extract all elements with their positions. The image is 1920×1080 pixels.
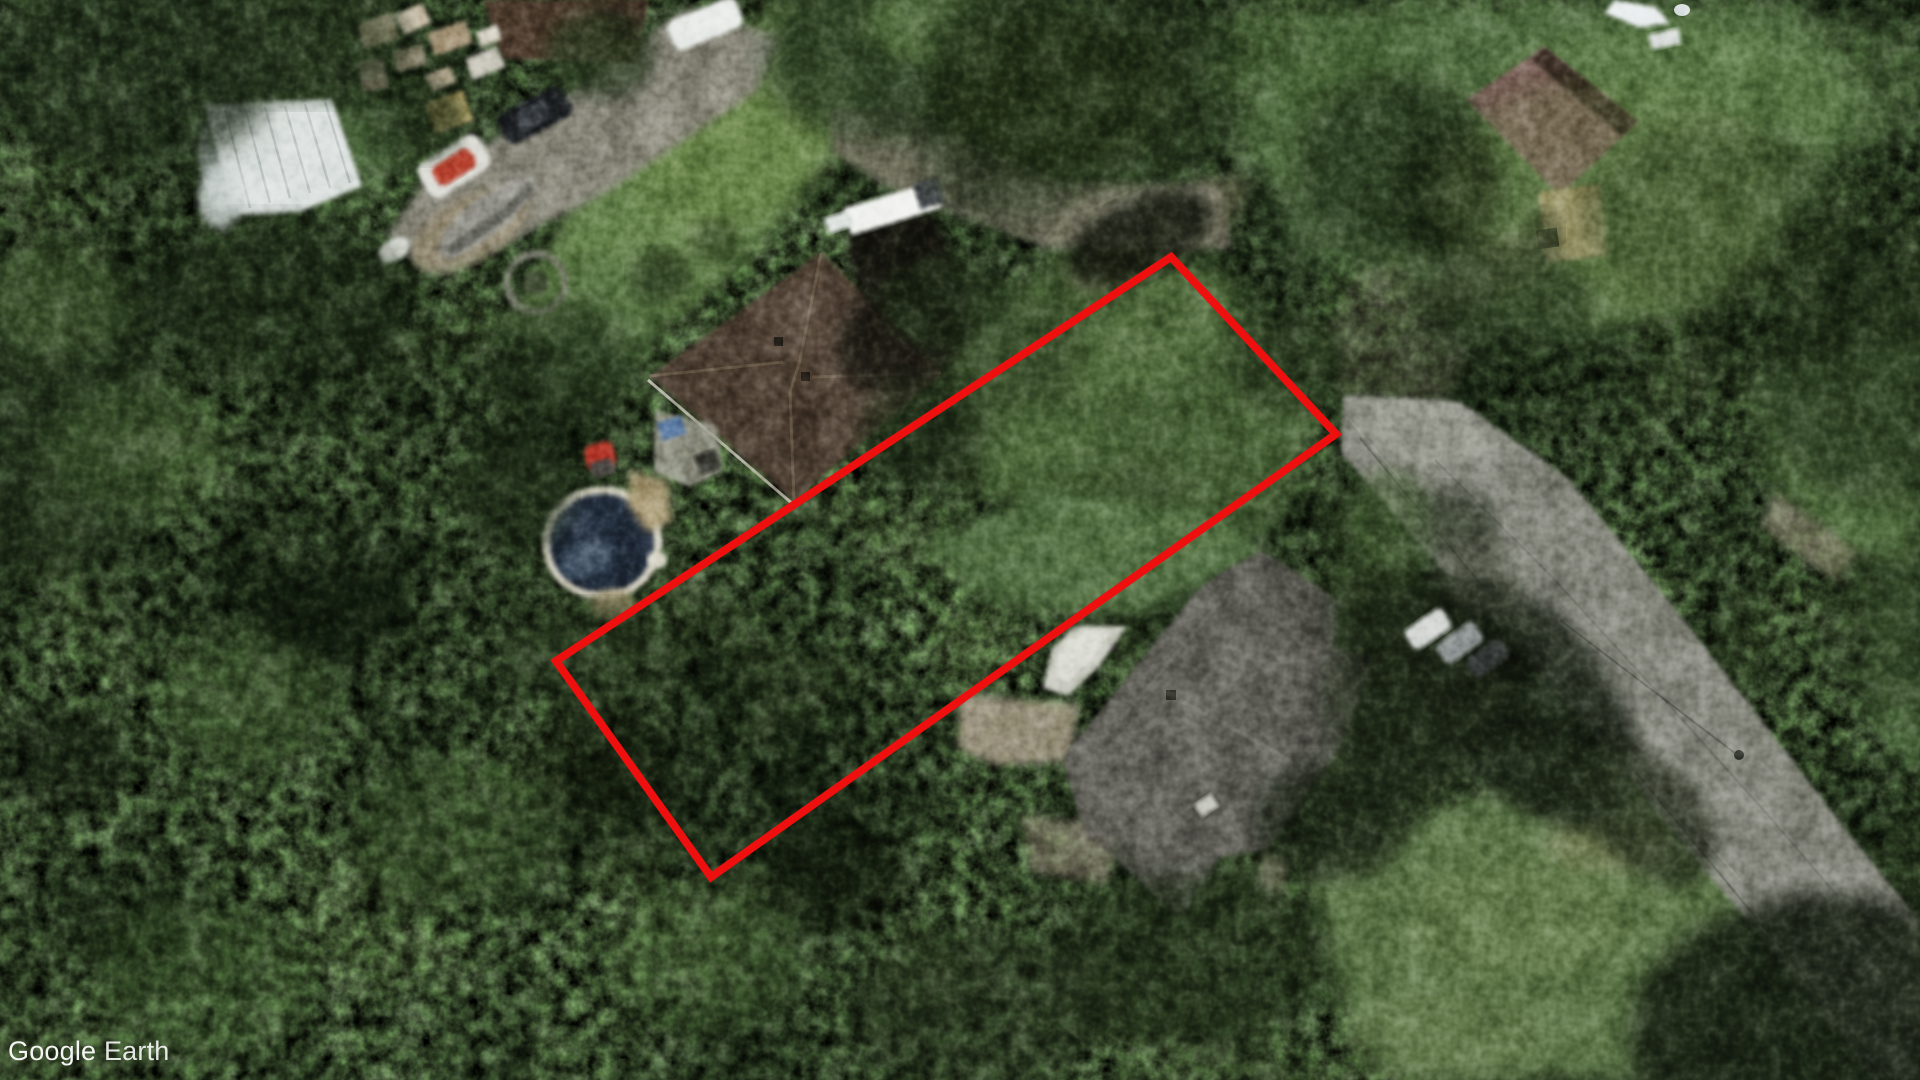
svg-text:Google Earth: Google Earth <box>8 1036 170 1066</box>
